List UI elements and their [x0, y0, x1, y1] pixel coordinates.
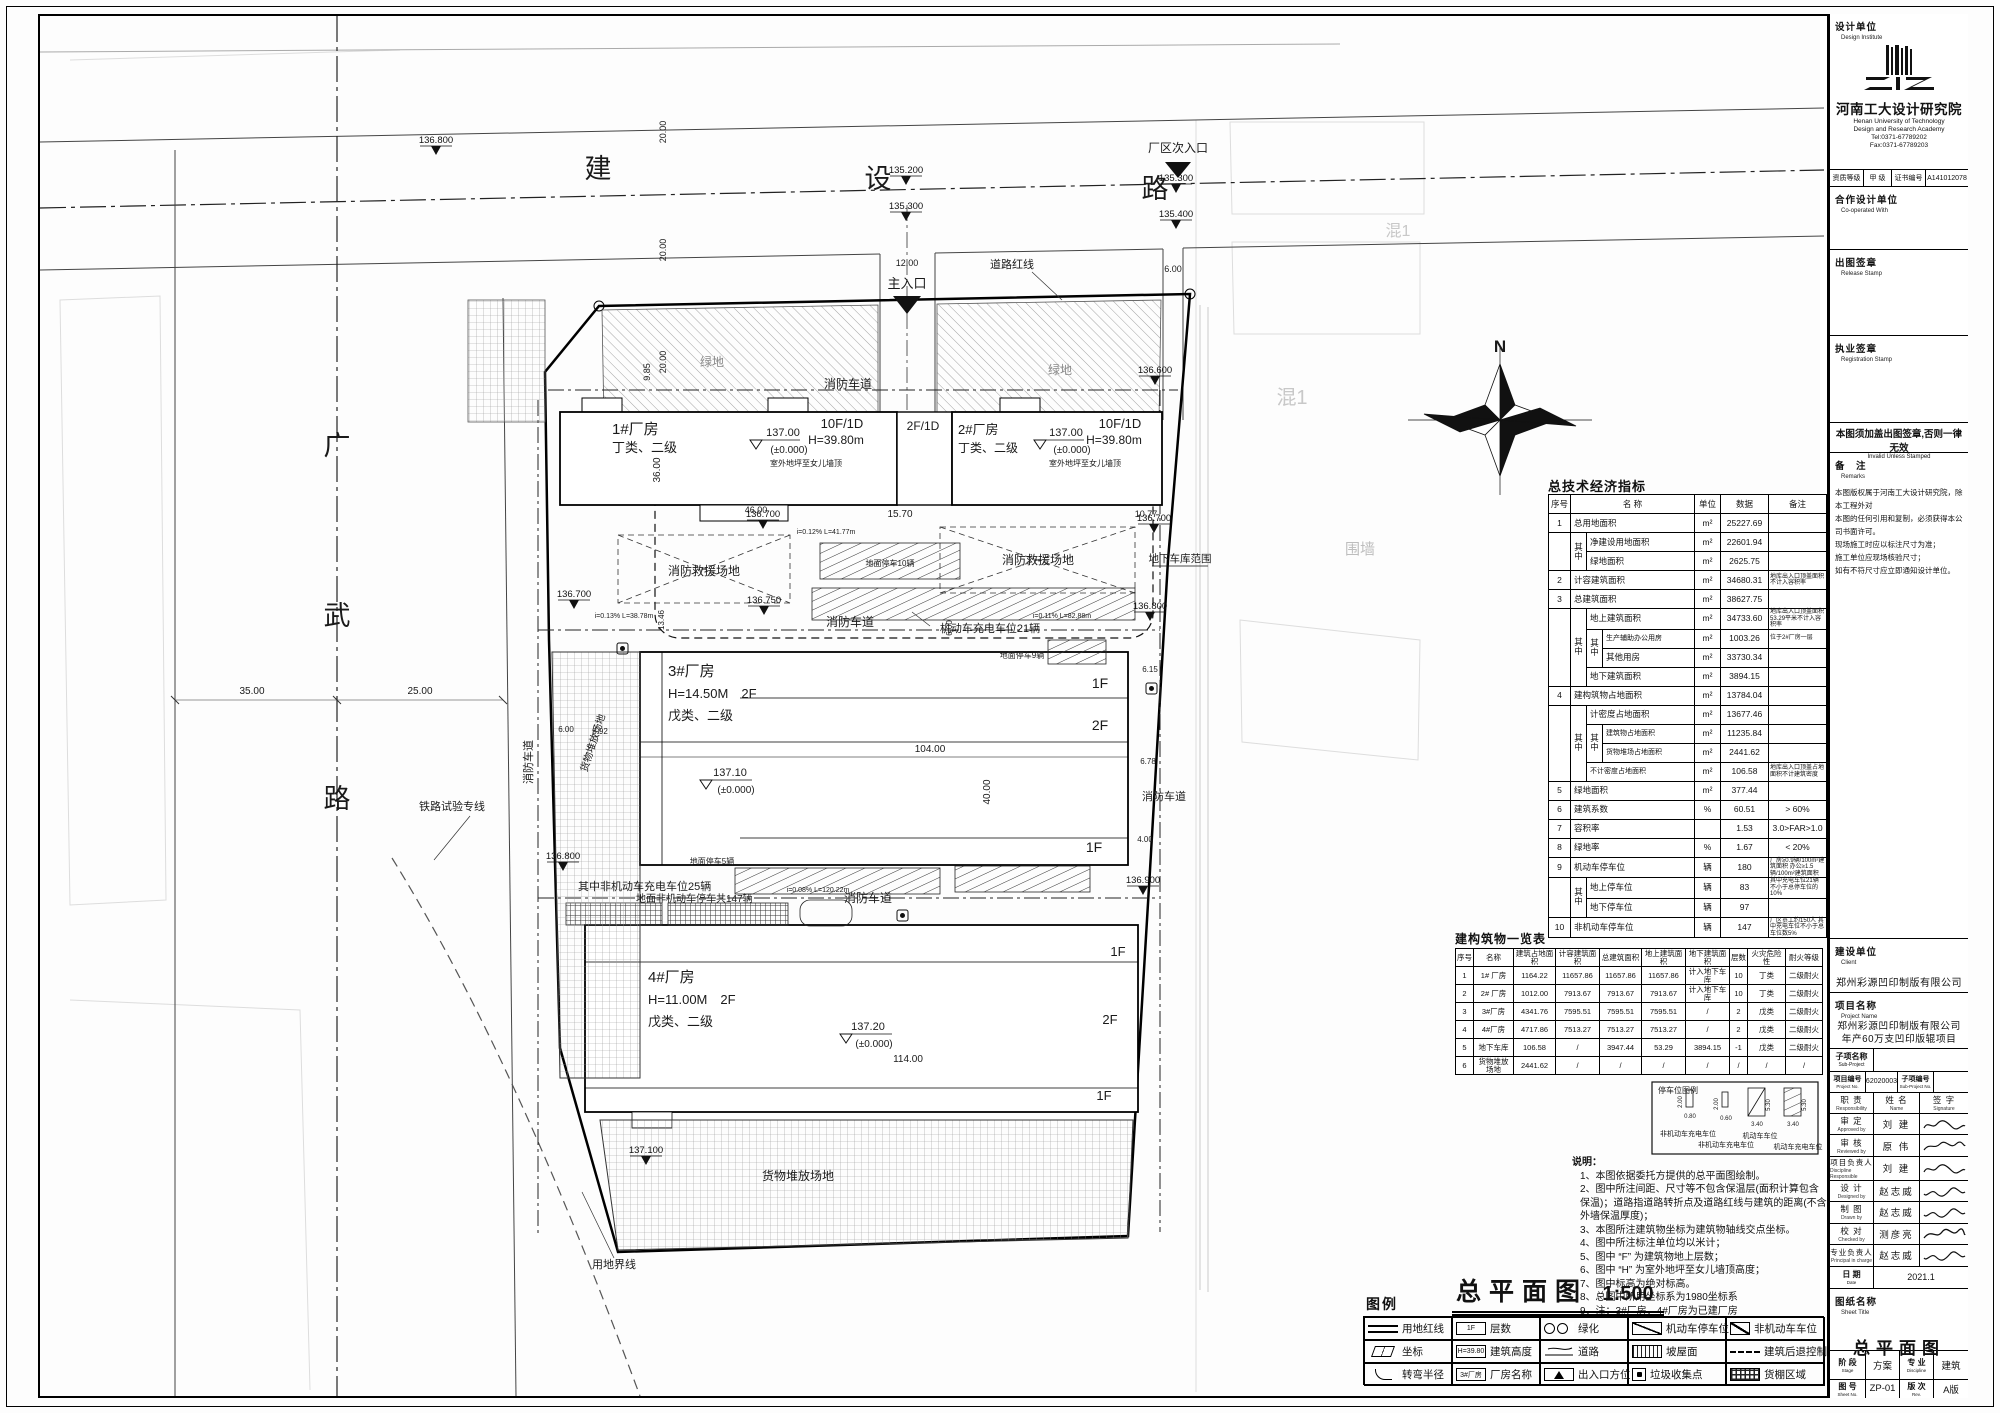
svg-text:136.750: 136.750	[747, 595, 781, 606]
svg-text:(±0.000): (±0.000)	[855, 1039, 892, 1050]
svg-text:136.800: 136.800	[419, 135, 453, 146]
svg-text:136.900: 136.900	[1126, 875, 1160, 886]
svg-text:6.78: 6.78	[1140, 757, 1156, 766]
svg-text:20.00: 20.00	[658, 351, 668, 374]
svg-text:混1: 混1	[1386, 222, 1411, 240]
svg-text:5.30: 5.30	[1802, 1099, 1808, 1111]
green-strips	[602, 300, 1161, 424]
svg-text:136.700: 136.700	[1137, 513, 1171, 524]
svg-text:1F: 1F	[1092, 675, 1108, 691]
svg-text:0.60: 0.60	[1720, 1116, 1732, 1122]
svg-text:建: 建	[585, 154, 612, 184]
svg-text:消防车道: 消防车道	[521, 740, 535, 784]
signature	[1920, 1157, 1968, 1180]
road-centerline-jianshe	[40, 170, 1824, 208]
slope-roof-icon	[1632, 1345, 1662, 1358]
legend-title: 图例	[1366, 1294, 1398, 1314]
svg-text:H=11.00M 2F: H=11.00M 2F	[648, 992, 736, 1007]
signature	[1920, 1181, 1968, 1201]
svg-text:地面停车5辆: 地面停车5辆	[690, 856, 734, 866]
building-name-icon: 3#厂房	[1456, 1368, 1486, 1381]
svg-text:1F: 1F	[1086, 839, 1102, 855]
svg-text:1F: 1F	[1096, 1088, 1111, 1103]
svg-text:0.80: 0.80	[1684, 1114, 1696, 1120]
sheet-title: 总平面图	[1835, 1334, 1963, 1359]
svg-text:铁路试验专线: 铁路试验专线	[419, 799, 485, 813]
svg-text:(±0.000): (±0.000)	[1053, 445, 1090, 456]
svg-text:消防救援场地: 消防救援场地	[668, 563, 740, 578]
remarks-lines: 本图版权属于河南工大设计研究院，除本工程外对本图的任何引用和复制，必须获得本公司…	[1835, 486, 1963, 577]
project-name-line1: 郑州彩源凹印制版有限公司	[1835, 1020, 1963, 1033]
svg-text:混1: 混1	[1276, 386, 1307, 409]
svg-text:非机动车充电车位: 非机动车充电车位	[1698, 1140, 1754, 1149]
svg-text:135.300: 135.300	[1159, 173, 1193, 184]
svg-text:136.800: 136.800	[1133, 601, 1167, 612]
sheet-number: ZP-01	[1866, 1380, 1900, 1398]
buildings-table-title: 建构筑物一览表	[1455, 930, 1546, 947]
svg-text:36.00: 36.00	[652, 457, 663, 482]
drawing-title-scale: 1:500	[1602, 1283, 1653, 1305]
svg-text:15.70: 15.70	[887, 509, 912, 520]
building-3	[640, 652, 1128, 865]
client-section: 建设单位 Client 郑州彩源凹印制版有限公司	[1830, 939, 1968, 993]
svg-text:地面停车10辆: 地面停车10辆	[866, 558, 915, 568]
svg-text:135.200: 135.200	[889, 165, 923, 176]
client-name: 郑州彩源凹印制版有限公司	[1835, 974, 1963, 989]
svg-text:(±0.000): (±0.000)	[717, 785, 754, 796]
date-row: 日 期 Date 2021.1	[1830, 1267, 1968, 1290]
svg-text:i=0.12% L=41.77m: i=0.12% L=41.77m	[797, 529, 856, 536]
legend-item-entrance: 出入口方位	[1540, 1363, 1628, 1386]
svg-text:6.00: 6.00	[558, 725, 574, 734]
svg-text:4.00: 4.00	[1137, 835, 1153, 844]
project-name-section: 项目名称 Project Name 郑州彩源凹印制版有限公司 年产60万支凹印版…	[1830, 993, 1968, 1049]
svg-text:12.00: 12.00	[896, 258, 919, 268]
signature	[1920, 1224, 1968, 1244]
svg-text:135.300: 135.300	[889, 201, 923, 212]
sheet-title-section: 图纸名称 Sheet Title 总平面图	[1830, 1289, 1968, 1351]
svg-text:设: 设	[865, 164, 892, 194]
indicators-table: 序号名 称单位数据备注1总用地面积m²25227.69其中净建设用地面积m²22…	[1548, 494, 1827, 938]
main-entrance-arrow	[893, 296, 921, 314]
svg-text:6.00: 6.00	[945, 620, 954, 636]
legend-item-floors: 1F 层数	[1452, 1317, 1540, 1340]
roles-header: 职 责Responsibility 姓 名Name 签 字Signature	[1830, 1093, 1968, 1114]
role-project-lead: 项目负责人Discipline Responsible 刘 建	[1830, 1157, 1968, 1181]
coordinate-icon	[1368, 1345, 1398, 1358]
institute-fax: Fax:0371-67789203	[1835, 142, 1963, 150]
green-icon	[1544, 1322, 1574, 1335]
svg-text:丁类、二级: 丁类、二级	[958, 441, 1018, 455]
svg-text:(±0.000): (±0.000)	[770, 445, 807, 456]
svg-text:2#厂房: 2#厂房	[958, 422, 998, 437]
cooperation-section: 合作设计单位 Co-operated With	[1830, 187, 1968, 250]
sheet-number-row: 图 号 Sheet No. ZP-01 版 次 Rev. A版	[1830, 1380, 1968, 1398]
registration-stamp-section: 执业签章 Registration Stamp	[1830, 336, 1968, 423]
role-principal: 专业负责人Principal in charge 赵志威	[1830, 1245, 1968, 1265]
title-block: 设计单位 Design Institute 河南工大设计研究院 Henan Un…	[1827, 14, 1968, 1398]
buildings-table-body: 序号名称建筑占地面积计容建筑面积总建筑面积地上建筑面积地下建筑面积层数火灾危险性…	[1456, 949, 1823, 1075]
svg-text:1F: 1F	[1110, 944, 1125, 959]
svg-text:13.46: 13.46	[657, 609, 666, 630]
svg-text:137.00: 137.00	[1049, 427, 1083, 439]
legend-item-height: H=39.80 建筑高度	[1452, 1340, 1540, 1363]
redline-icon	[1368, 1325, 1398, 1333]
svg-text:消防车道: 消防车道	[824, 376, 872, 391]
svg-text:8.92: 8.92	[592, 727, 608, 736]
svg-text:绿地: 绿地	[700, 354, 724, 369]
license-row: 资质等级 甲 级 证书编号 A141012078	[1830, 170, 1968, 187]
svg-text:N: N	[1494, 337, 1506, 356]
svg-text:地下车库范围: 地下车库范围	[1149, 552, 1212, 565]
svg-text:3.40: 3.40	[1787, 1122, 1799, 1128]
revision: A版	[1934, 1380, 1968, 1398]
buildings-table: 序号名称建筑占地面积计容建筑面积总建筑面积地上建筑面积地下建筑面积层数火灾危险性…	[1455, 948, 1823, 1075]
turn-radius-icon	[1368, 1368, 1398, 1381]
remarks-section: 备 注 Remarks 本图版权属于河南工大设计研究院，除本工程外对本图的任何引…	[1830, 453, 1968, 939]
svg-text:i=0.13% L=38.78m: i=0.13% L=38.78m	[595, 613, 654, 620]
institute-logo	[1835, 45, 1963, 96]
svg-text:丁类、二级: 丁类、二级	[612, 440, 677, 455]
svg-text:2F: 2F	[1102, 1012, 1117, 1027]
garbage-icon	[1632, 1368, 1646, 1381]
svg-text:室外地坪至女儿墙顶: 室外地坪至女儿墙顶	[1049, 458, 1121, 468]
svg-text:机动车车位: 机动车车位	[1743, 1131, 1778, 1140]
drawing-sheet: 建设路广武路N主入口厂区次入口道路红线12.006.00绿地绿地混1混1围墙铁路…	[0, 0, 2000, 1413]
svg-text:戊类、二级: 戊类、二级	[668, 708, 733, 723]
svg-text:H=14.50M 2F: H=14.50M 2F	[668, 686, 757, 701]
svg-text:3.40: 3.40	[1751, 1122, 1763, 1128]
svg-text:消防车道: 消防车道	[1142, 789, 1186, 803]
legend: 用地红线 1F 层数 绿化 机动车停车位 非机动车车位 坐标 H=39.80 建…	[1363, 1316, 1824, 1385]
svg-text:停车位图例: 停车位图例	[1658, 1085, 1698, 1095]
legend-item-shed: 货棚区域	[1726, 1363, 1825, 1386]
road-icon	[1544, 1345, 1574, 1358]
svg-text:非机动车充电车位: 非机动车充电车位	[1660, 1129, 1716, 1138]
svg-text:9.85: 9.85	[642, 363, 652, 381]
svg-text:20.00: 20.00	[658, 239, 668, 262]
svg-text:6.00: 6.00	[1164, 264, 1182, 274]
institute-tel: Tel:0371-67789202	[1835, 134, 1963, 142]
svg-text:货物堆放场地: 货物堆放场地	[762, 1168, 834, 1183]
svg-text:40.00: 40.00	[982, 779, 993, 804]
indicators-table-title: 总技术经济指标	[1548, 476, 1646, 495]
svg-text:5.30: 5.30	[1766, 1099, 1772, 1111]
legend-item-bike-parking: 非机动车车位	[1726, 1317, 1825, 1340]
svg-text:广: 广	[324, 431, 351, 461]
svg-text:道路红线: 道路红线	[990, 257, 1034, 271]
bike-parking-icon	[1730, 1322, 1750, 1335]
svg-text:25.00: 25.00	[407, 686, 432, 697]
svg-text:137.10: 137.10	[713, 767, 747, 779]
svg-text:围墙: 围墙	[1345, 541, 1375, 558]
svg-text:136.700: 136.700	[557, 589, 591, 600]
svg-text:用地界线: 用地界线	[592, 1257, 636, 1271]
svg-text:4#厂房: 4#厂房	[648, 969, 695, 986]
institute-name: 河南工大设计研究院	[1835, 98, 1963, 118]
svg-text:104.00: 104.00	[915, 744, 946, 755]
subproject-value	[1874, 1049, 1968, 1071]
role-approved: 审 定Approved by 刘 建	[1830, 1114, 1968, 1135]
notes-title: 说明：	[1572, 1156, 1828, 1170]
legend-item-road: 道路	[1540, 1340, 1628, 1363]
legend-item-green: 绿化	[1540, 1317, 1628, 1340]
svg-text:2F: 2F	[1092, 717, 1108, 733]
legend-item-redline: 用地红线	[1364, 1317, 1452, 1340]
svg-text:137.100: 137.100	[629, 1145, 663, 1156]
project-number-row: 项目编号 Project No. 62020003 子项编号 Sub-Proje…	[1830, 1072, 1968, 1093]
svg-text:室外地坪至女儿墙顶: 室外地坪至女儿墙顶	[770, 458, 842, 468]
svg-text:136.600: 136.600	[1138, 365, 1172, 376]
svg-text:6.15: 6.15	[1142, 665, 1158, 674]
legend-item-coordinate: 坐标	[1364, 1340, 1452, 1363]
subproject-row: 子项名称 Sub-Project	[1830, 1049, 1968, 1072]
project-name-line2: 年产60万支凹印版辊项目	[1835, 1033, 1963, 1046]
svg-text:114.00: 114.00	[893, 1054, 923, 1065]
north-compass-icon	[1408, 345, 1592, 495]
indicators-table-body: 序号名 称单位数据备注1总用地面积m²25227.69其中净建设用地面积m²22…	[1549, 495, 1827, 938]
validity-note: 本图须加盖出图签章,否则一律无效 Invalid Unless Stamped	[1830, 423, 1968, 453]
role-drafter: 制 图Drawn by 赵志威	[1830, 1202, 1968, 1223]
legend-item-building-name: 3#厂房 厂房名称	[1452, 1363, 1540, 1386]
project-number: 62020003	[1866, 1072, 1898, 1092]
legend-item-garbage: 垃圾收集点	[1628, 1363, 1726, 1386]
svg-text:路: 路	[324, 784, 351, 814]
svg-text:H=39.80m: H=39.80m	[808, 433, 864, 447]
signature	[1920, 1202, 1968, 1222]
svg-text:10F/1D: 10F/1D	[1099, 416, 1142, 431]
svg-text:20.00: 20.00	[658, 121, 668, 144]
building-height-icon: H=39.80	[1456, 1345, 1486, 1358]
shed-area-icon	[1730, 1368, 1760, 1381]
signature	[1920, 1135, 1968, 1155]
svg-text:主入口: 主入口	[887, 276, 926, 291]
svg-text:机动车充电车位21辆: 机动车充电车位21辆	[940, 621, 1040, 635]
setback-line-icon	[1730, 1351, 1760, 1353]
svg-text:137.00: 137.00	[766, 427, 800, 439]
drawing-title: 总平面图 1:500	[1452, 1272, 1664, 1316]
role-reviewed: 审 核Reviewed by 原 伟	[1830, 1135, 1968, 1156]
svg-text:消防车道: 消防车道	[826, 614, 874, 629]
svg-text:136.700: 136.700	[746, 509, 780, 520]
svg-text:H=39.80m: H=39.80m	[1086, 433, 1142, 447]
svg-text:10F/1D: 10F/1D	[821, 416, 864, 431]
floors-icon: 1F	[1456, 1322, 1486, 1335]
role-designer: 设 计Designed by 赵志威	[1830, 1181, 1968, 1202]
certificate-number: A141012078	[1926, 170, 1968, 186]
svg-text:地面停车9辆: 地面停车9辆	[1000, 650, 1044, 660]
svg-text:2.00: 2.00	[1678, 1096, 1684, 1108]
svg-text:137.20: 137.20	[851, 1021, 885, 1033]
legend-item-car-parking: 机动车停车位	[1628, 1317, 1726, 1340]
car-parking-icon	[1632, 1322, 1662, 1335]
svg-text:厂区次入口: 厂区次入口	[1148, 141, 1208, 155]
release-stamp-section: 出图签章 Release Stamp	[1830, 250, 1968, 335]
roles-table: 职 责Responsibility 姓 名Name 签 字Signature 审…	[1830, 1093, 1968, 1267]
entrance-icon	[1544, 1368, 1574, 1381]
date-value: 2021.1	[1874, 1267, 1968, 1289]
role-checker: 校 对Checked by 测彦亮	[1830, 1224, 1968, 1245]
svg-text:武: 武	[324, 601, 351, 631]
svg-text:135.400: 135.400	[1159, 209, 1193, 220]
svg-text:戊类、二级: 戊类、二级	[648, 1014, 713, 1029]
svg-text:i=0.11% L=82.88m: i=0.11% L=82.88m	[1033, 613, 1091, 620]
legend-item-setback: 建筑后退控制线	[1726, 1340, 1825, 1363]
design-institute-section: 设计单位 Design Institute 河南工大设计研究院 Henan Un…	[1830, 14, 1968, 170]
drawing-title-text: 总平面图	[1456, 1278, 1588, 1306]
svg-text:消防救援场地: 消防救援场地	[1002, 552, 1074, 567]
svg-text:机动车充电车位: 机动车充电车位	[1774, 1142, 1823, 1151]
svg-text:地面非机动车停车共147辆: 地面非机动车停车共147辆	[636, 892, 753, 905]
svg-text:其中非机动车充电车位25辆: 其中非机动车充电车位25辆	[578, 879, 711, 893]
signature	[1920, 1114, 1968, 1134]
svg-text:i=0.08% L=120.22m: i=0.08% L=120.22m	[787, 887, 850, 894]
subproject-number	[1934, 1072, 1968, 1092]
svg-text:2.00: 2.00	[1714, 1098, 1720, 1110]
legend-item-slope-roof: 坡屋面	[1628, 1340, 1726, 1363]
svg-text:136.800: 136.800	[546, 851, 580, 862]
signature	[1920, 1245, 1968, 1265]
svg-text:3#厂房: 3#厂房	[668, 663, 715, 680]
svg-text:绿地: 绿地	[1048, 362, 1072, 377]
svg-text:消防车道: 消防车道	[844, 890, 892, 905]
legend-item-turn-radius: 转弯半径	[1364, 1363, 1452, 1386]
svg-text:2F/1D: 2F/1D	[907, 419, 940, 433]
svg-text:1#厂房: 1#厂房	[612, 421, 659, 438]
svg-text:35.00: 35.00	[239, 686, 264, 697]
